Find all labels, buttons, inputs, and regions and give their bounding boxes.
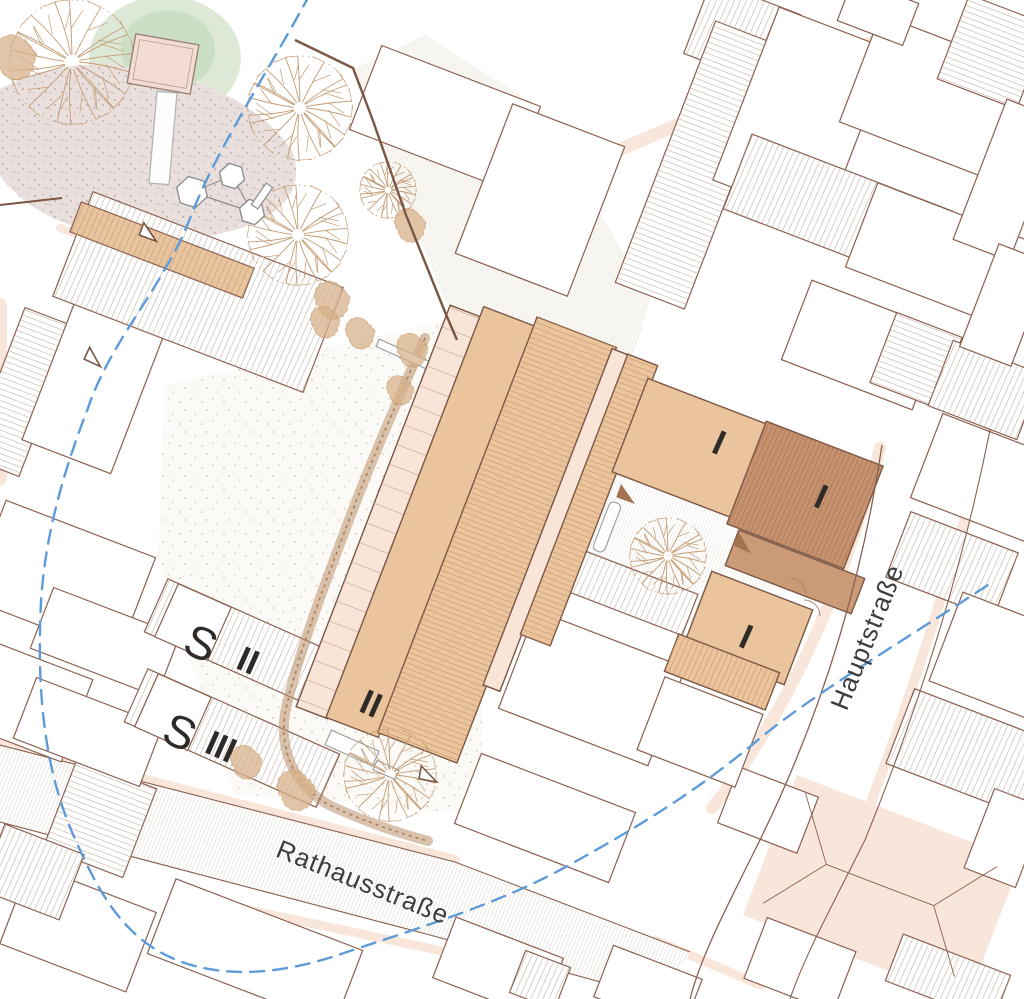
site-plan-drawing <box>0 0 1024 999</box>
site-plan-stage: S II S III II I I I Rathausstraße Haupts… <box>0 0 1024 999</box>
